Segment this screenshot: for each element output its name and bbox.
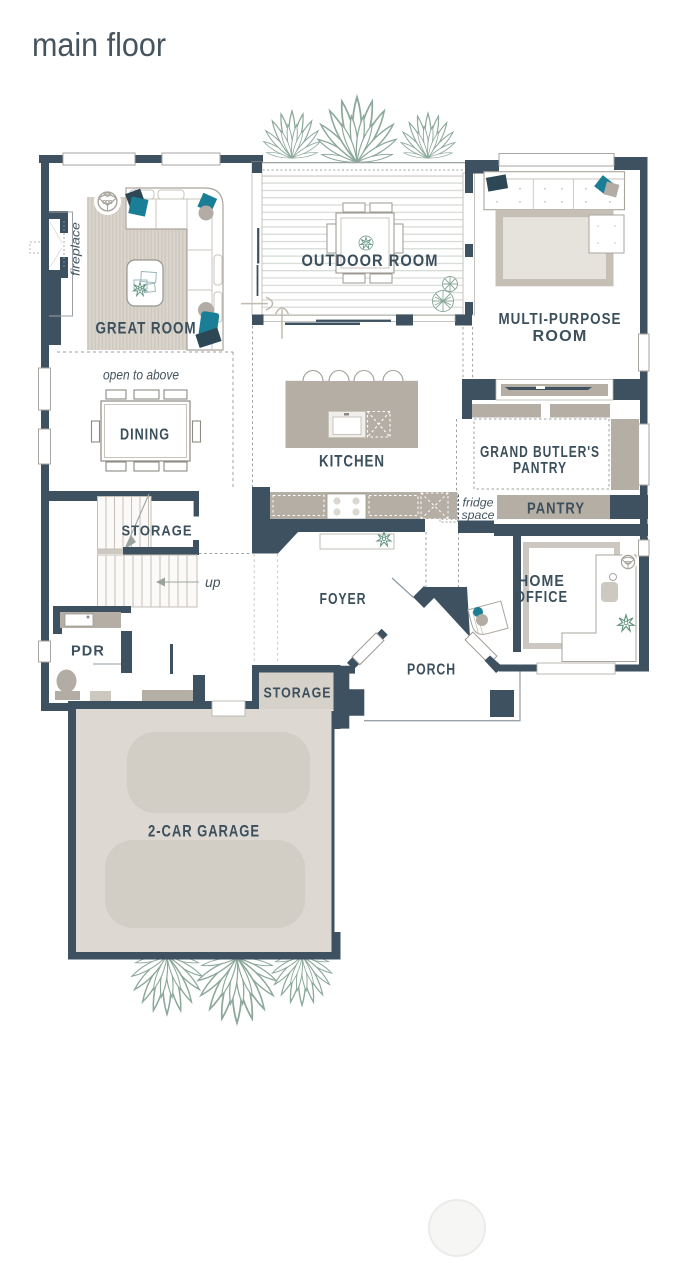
svg-text:fridge: fridge xyxy=(463,498,494,510)
svg-text:MULTI-PURPOSE: MULTI-PURPOSE xyxy=(499,311,622,328)
svg-text:HOME: HOME xyxy=(518,573,565,590)
svg-text:2-CAR GARAGE: 2-CAR GARAGE xyxy=(148,823,260,841)
svg-text:STORAGE: STORAGE xyxy=(122,523,193,540)
svg-text:PDR: PDR xyxy=(71,643,105,660)
svg-text:space: space xyxy=(462,510,495,522)
svg-text:main floor: main floor xyxy=(32,26,166,63)
svg-text:OUTDOOR ROOM: OUTDOOR ROOM xyxy=(302,251,439,270)
svg-text:DINING: DINING xyxy=(120,427,170,444)
svg-text:ROOM: ROOM xyxy=(533,328,588,345)
svg-text:GREAT ROOM: GREAT ROOM xyxy=(96,319,197,338)
svg-text:up: up xyxy=(205,574,221,590)
svg-text:PANTRY: PANTRY xyxy=(513,460,567,477)
svg-text:GRAND BUTLER'S: GRAND BUTLER'S xyxy=(480,444,600,461)
svg-text:FOYER: FOYER xyxy=(320,591,367,608)
svg-text:OFFICE: OFFICE xyxy=(515,589,568,606)
svg-text:fireplace: fireplace xyxy=(71,222,83,276)
svg-text:PORCH: PORCH xyxy=(407,662,456,679)
svg-text:KITCHEN: KITCHEN xyxy=(319,452,385,471)
svg-text:open to above: open to above xyxy=(103,367,179,383)
svg-text:PANTRY: PANTRY xyxy=(527,501,585,518)
svg-text:STORAGE: STORAGE xyxy=(264,685,332,702)
